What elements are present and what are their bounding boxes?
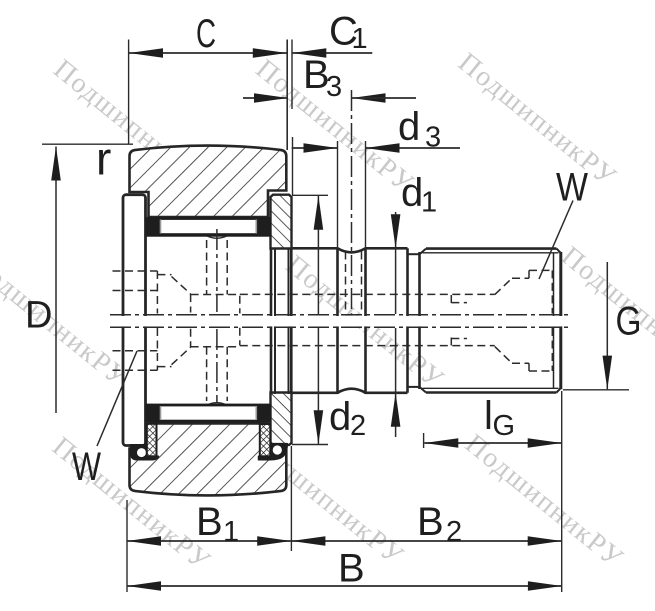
svg-text:2: 2 — [446, 516, 462, 548]
svg-text:3: 3 — [326, 71, 342, 103]
svg-text:3: 3 — [425, 122, 441, 154]
svg-text:C: C — [196, 12, 216, 56]
svg-text:G: G — [616, 300, 642, 344]
svg-text:B: B — [196, 500, 223, 544]
svg-text:W: W — [556, 166, 588, 210]
svg-text:W: W — [72, 445, 101, 489]
svg-text:d: d — [329, 395, 351, 439]
svg-text:B: B — [338, 547, 365, 591]
svg-text:d: d — [398, 105, 420, 149]
svg-text:r: r — [96, 133, 111, 185]
svg-text:2: 2 — [350, 410, 366, 442]
svg-text:D: D — [25, 295, 52, 337]
svg-text:1: 1 — [223, 516, 239, 548]
svg-text:B: B — [417, 500, 444, 544]
svg-text:d: d — [401, 171, 423, 215]
svg-text:1: 1 — [421, 187, 437, 219]
svg-text:G: G — [493, 410, 516, 442]
svg-text:1: 1 — [352, 23, 368, 55]
